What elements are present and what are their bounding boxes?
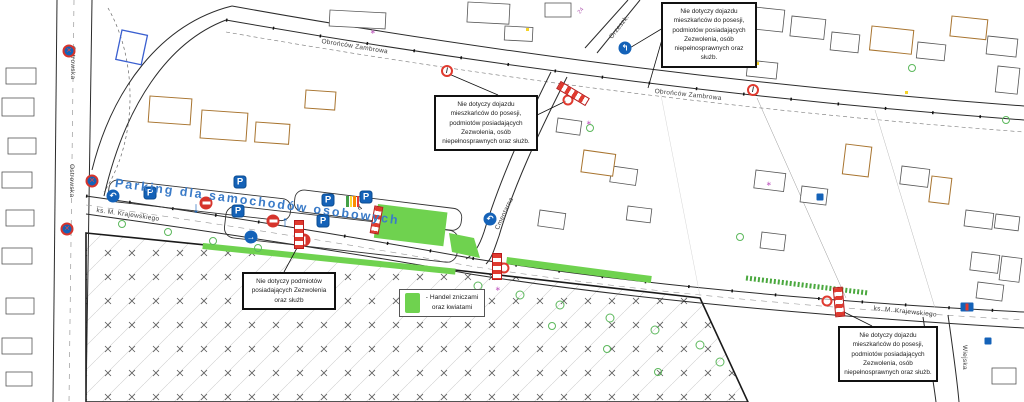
traffic-plan-map: ∗ ∗ ∗ ∗ ∗ Ostrowska Ostrowska Obrońców Z… (0, 0, 1024, 402)
cemetery-area (86, 233, 748, 402)
turn-left-sign: ↶ (484, 213, 497, 226)
flow-arrow-up: ↑ (281, 215, 289, 230)
blue-marker-sign (817, 194, 824, 201)
legend-box: - Handel zniczami oraz kwiatami (399, 289, 485, 317)
no-parking-sign: / (747, 84, 759, 96)
highlighted-building-blue (116, 30, 148, 65)
svg-text:∗: ∗ (370, 29, 376, 36)
callout-mid-left: Nie dotyczy dojazdu mieszkańców do poses… (434, 95, 538, 151)
dead-end-sign (961, 303, 974, 312)
legend-label: - Handel zniczami oraz kwiatami (425, 293, 479, 313)
callout-bottom-right: Nie dotyczy dojazdu mieszkańców do poses… (838, 326, 938, 382)
striped-barrier (294, 220, 304, 249)
turn-left-sign: ↶ (107, 190, 120, 203)
blue-marker-sign (985, 338, 992, 345)
callout-top-right: Nie dotyczy dojazdu mieszkańców do poses… (661, 2, 757, 68)
street-label-wiejska: Wiejska (961, 345, 968, 370)
mandatory-direction-sign: ↰ (619, 42, 632, 55)
svg-text:∗: ∗ (766, 181, 772, 188)
street-label-ostrowska-bottom: Ostrowska (68, 164, 75, 197)
svg-text:∗: ∗ (495, 286, 501, 293)
legend-green-swatch (405, 293, 420, 313)
sign-post-ring (822, 296, 833, 307)
callout-bottom-left: Nie dotyczy podmiotów posiadających Zezw… (242, 272, 336, 310)
parking-sign: P (234, 176, 247, 189)
no-stopping-sign: ✕ (61, 223, 74, 236)
svg-text:∗: ∗ (586, 120, 592, 127)
colored-stripe-marker (346, 196, 359, 207)
no-parking-sign: / (441, 65, 453, 77)
no-entry-sign (267, 215, 280, 228)
striped-barrier (492, 253, 502, 280)
no-stopping-sign: ✕ (63, 45, 76, 58)
no-stopping-sign: ✕ (86, 175, 99, 188)
parking-disabled-sign: P (360, 191, 373, 204)
flow-arrow-down: ↓ (192, 201, 200, 216)
direction-right-sign: → (245, 231, 258, 244)
